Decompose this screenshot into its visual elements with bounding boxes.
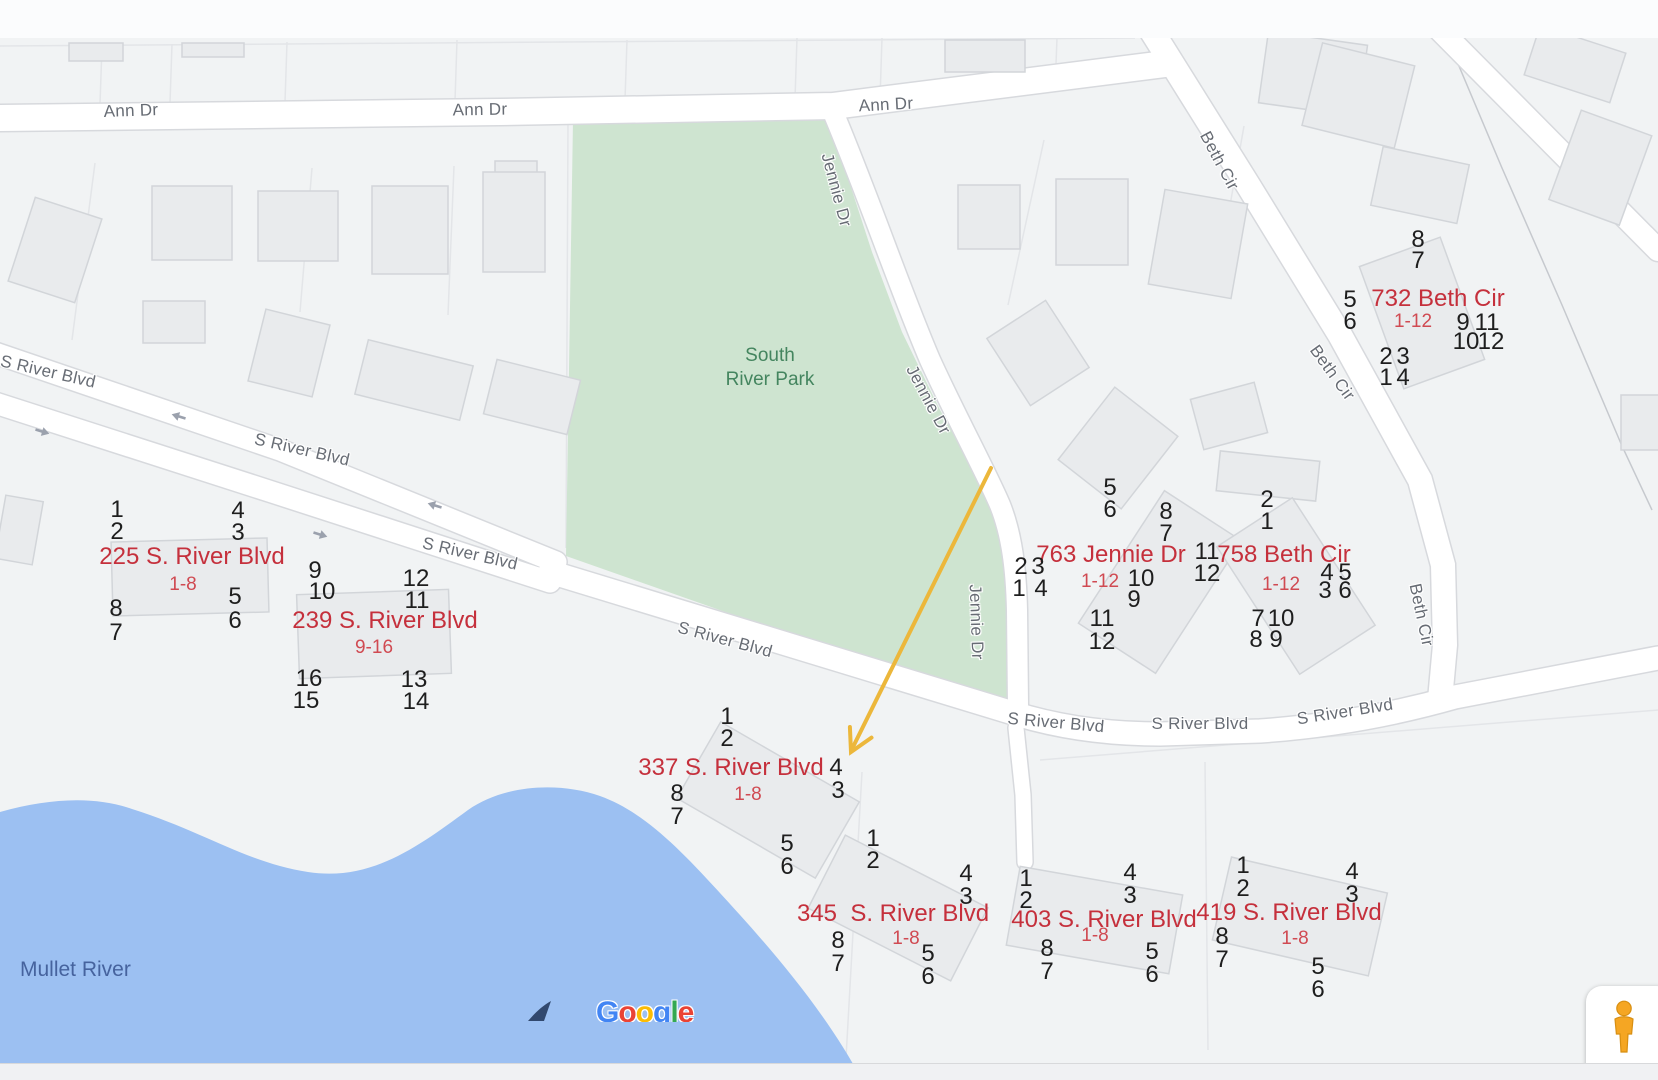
park-label-line1: South — [726, 344, 815, 368]
park-label: South River Park — [726, 344, 815, 392]
water-body-label: Mullet River — [20, 958, 131, 982]
map-graphics — [0, 0, 1658, 1080]
google-logo: Google — [596, 1009, 693, 1022]
google-attribution[interactable]: Google — [596, 996, 706, 1022]
pegman-icon — [1604, 1000, 1644, 1059]
park-label-line2: River Park — [726, 368, 815, 392]
page-bottom-margin — [0, 1063, 1658, 1080]
map-screenshot: Ann DrAnn DrAnn DrS River BlvdS River Bl… — [0, 0, 1658, 1080]
map-canvas[interactable]: Ann DrAnn DrAnn DrS River BlvdS River Bl… — [0, 0, 1658, 1080]
page-top-margin — [0, 0, 1658, 38]
boat-ramp-icon — [527, 1000, 561, 1022]
